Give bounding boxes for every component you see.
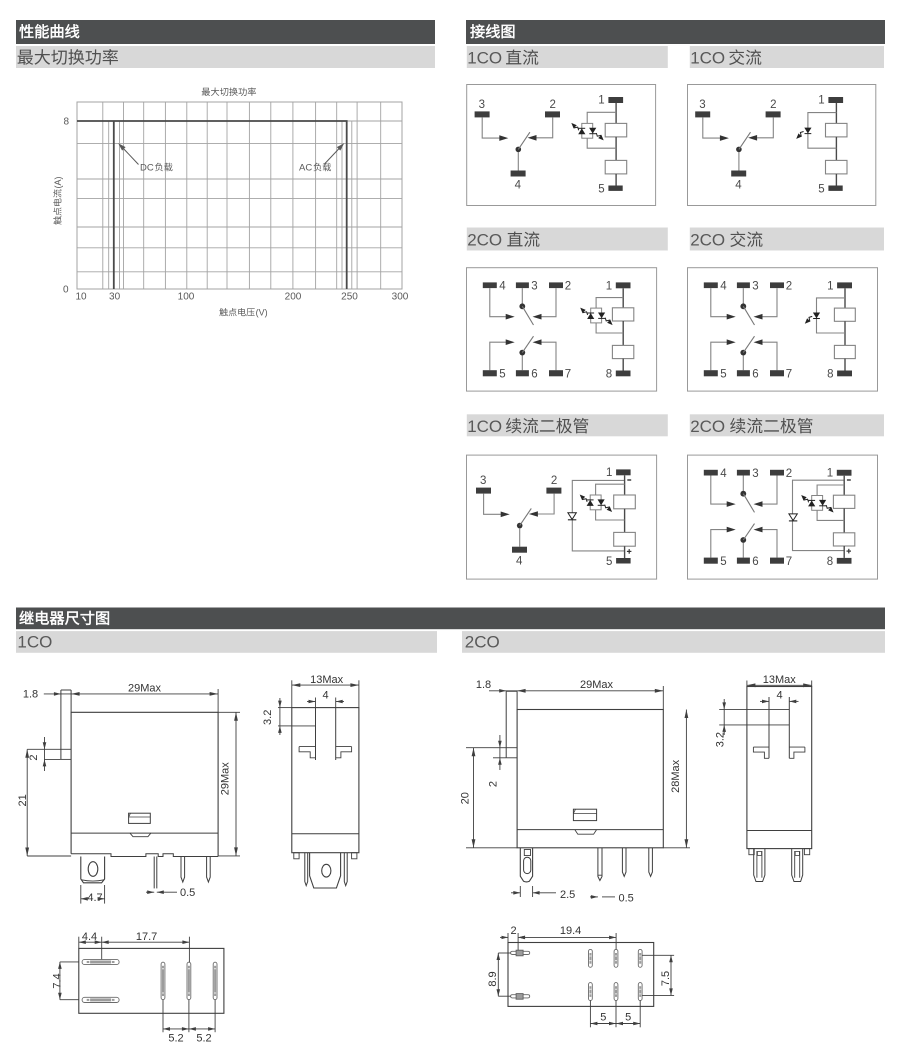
- svg-text:3: 3: [531, 281, 537, 293]
- svg-text:2CO: 2CO: [690, 417, 725, 436]
- svg-text:29Max: 29Max: [128, 683, 162, 695]
- svg-text:(A): (A): [53, 177, 63, 189]
- svg-text:4: 4: [720, 281, 727, 293]
- svg-text:4: 4: [323, 690, 329, 702]
- svg-text:300: 300: [392, 291, 409, 302]
- svg-text:8: 8: [827, 556, 833, 568]
- svg-text:5: 5: [720, 556, 726, 568]
- svg-text:1: 1: [606, 467, 612, 479]
- svg-text:8: 8: [827, 369, 833, 381]
- svg-text:2: 2: [510, 925, 516, 937]
- svg-text:5: 5: [499, 369, 505, 381]
- svg-text:8.9: 8.9: [487, 971, 499, 986]
- svg-text:1: 1: [818, 95, 824, 107]
- svg-text:6: 6: [752, 556, 758, 568]
- svg-text:7.4: 7.4: [52, 973, 64, 988]
- svg-text:4: 4: [515, 180, 522, 192]
- svg-text:2.5: 2.5: [560, 889, 575, 901]
- svg-text:0.5: 0.5: [619, 893, 634, 905]
- svg-text:30: 30: [109, 291, 121, 302]
- svg-text:20: 20: [460, 792, 472, 804]
- svg-text:10: 10: [75, 291, 87, 302]
- svg-text:3.2: 3.2: [715, 732, 727, 747]
- svg-text:6: 6: [531, 369, 537, 381]
- svg-text:1: 1: [827, 281, 833, 293]
- svg-text:1: 1: [598, 95, 604, 107]
- svg-text:4: 4: [777, 690, 783, 702]
- svg-text:13Max: 13Max: [310, 674, 344, 686]
- svg-text:0.5: 0.5: [180, 887, 195, 899]
- svg-text:4: 4: [516, 556, 523, 568]
- svg-text:2: 2: [28, 755, 40, 761]
- svg-text:2CO: 2CO: [467, 231, 502, 250]
- svg-text:5: 5: [600, 1012, 606, 1024]
- svg-text:4: 4: [735, 180, 742, 192]
- svg-text:2: 2: [488, 781, 500, 787]
- svg-text:29Max: 29Max: [220, 762, 232, 796]
- svg-text:2CO: 2CO: [465, 633, 500, 652]
- svg-text:7: 7: [786, 556, 792, 568]
- svg-text:250: 250: [341, 291, 358, 302]
- svg-text:200: 200: [285, 291, 302, 302]
- svg-text:3: 3: [480, 475, 486, 487]
- svg-text:2: 2: [786, 468, 792, 480]
- svg-text:29Max: 29Max: [580, 679, 614, 691]
- svg-text:5: 5: [598, 184, 604, 196]
- svg-text:1CO: 1CO: [690, 49, 725, 68]
- svg-text:5.2: 5.2: [196, 1033, 211, 1045]
- svg-text:2: 2: [551, 475, 557, 487]
- svg-text:1CO: 1CO: [467, 49, 502, 68]
- svg-text:1: 1: [606, 281, 612, 293]
- svg-text:8: 8: [63, 117, 69, 128]
- svg-text:6: 6: [752, 369, 758, 381]
- svg-text:1: 1: [827, 467, 833, 479]
- svg-text:1.8: 1.8: [23, 689, 38, 701]
- svg-text:13Max: 13Max: [763, 674, 797, 686]
- svg-text:1.8: 1.8: [476, 679, 491, 691]
- svg-text:0: 0: [63, 285, 69, 296]
- svg-text:8: 8: [606, 369, 612, 381]
- svg-text:3: 3: [752, 468, 758, 480]
- svg-text:4: 4: [499, 281, 506, 293]
- svg-text:5: 5: [818, 184, 824, 196]
- svg-text:3.2: 3.2: [262, 710, 274, 725]
- svg-text:5: 5: [625, 1012, 631, 1024]
- svg-text:100: 100: [178, 291, 195, 302]
- svg-text:28Max: 28Max: [670, 759, 682, 793]
- svg-text:2CO: 2CO: [690, 231, 725, 250]
- svg-text:3: 3: [479, 99, 485, 111]
- svg-text:4: 4: [720, 468, 727, 480]
- svg-text:2: 2: [549, 99, 555, 111]
- svg-text:AC: AC: [299, 163, 312, 174]
- svg-text:7: 7: [565, 369, 571, 381]
- svg-text:3: 3: [752, 281, 758, 293]
- svg-text:DC: DC: [140, 163, 154, 174]
- svg-text:3: 3: [699, 99, 705, 111]
- svg-text:5.2: 5.2: [168, 1033, 183, 1045]
- svg-text:2: 2: [786, 281, 792, 293]
- svg-text:1CO: 1CO: [467, 417, 502, 436]
- svg-text:7: 7: [786, 369, 792, 381]
- svg-text:1CO: 1CO: [17, 633, 52, 652]
- svg-text:19.4: 19.4: [560, 925, 581, 937]
- svg-text:(V): (V): [256, 308, 268, 318]
- svg-text:2: 2: [565, 281, 571, 293]
- svg-text:5: 5: [720, 369, 726, 381]
- svg-text:2: 2: [770, 99, 776, 111]
- svg-text:5: 5: [606, 556, 612, 568]
- svg-text:17.7: 17.7: [136, 931, 157, 943]
- svg-text:7.5: 7.5: [660, 971, 672, 986]
